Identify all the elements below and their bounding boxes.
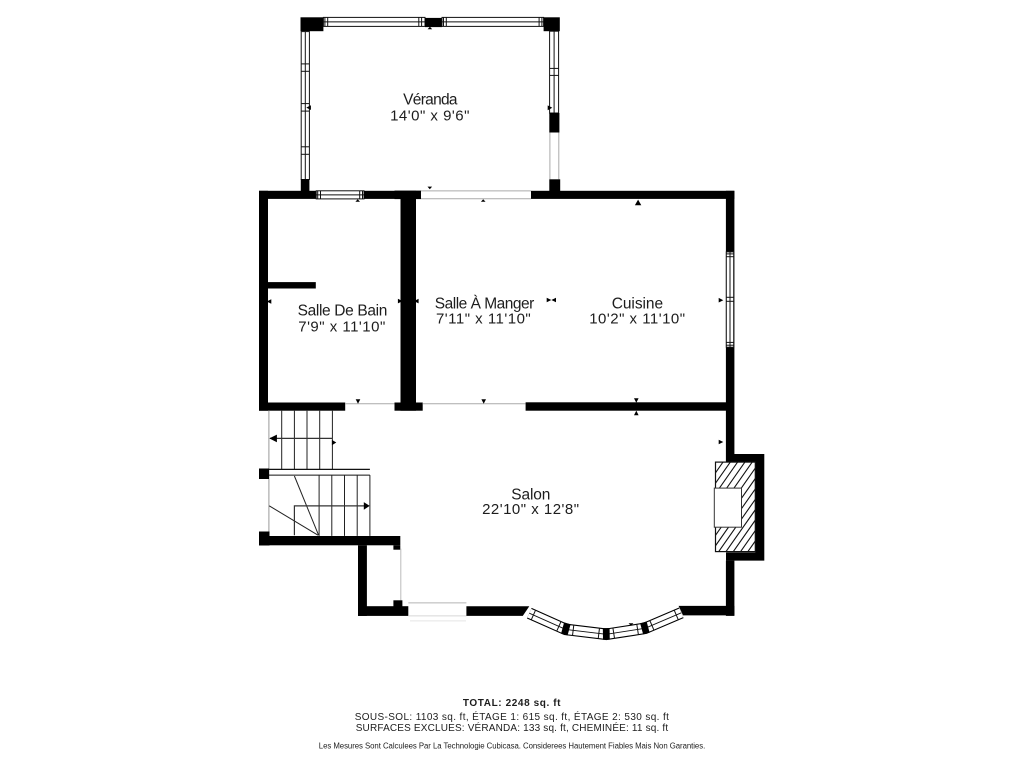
- svg-text:SURFACES EXCLUES: VÉRANDA: 133: SURFACES EXCLUES: VÉRANDA: 133 sq. ft, C…: [356, 721, 669, 734]
- svg-text:7'9" x 11'10": 7'9" x 11'10": [298, 319, 386, 336]
- svg-text:TOTAL: 2248 sq. ft: TOTAL: 2248 sq. ft: [463, 698, 561, 709]
- svg-text:14'0" x 9'6": 14'0" x 9'6": [390, 107, 470, 124]
- svg-text:10'2" x 11'10": 10'2" x 11'10": [589, 311, 685, 328]
- svg-text:SOUS-SOL: 1103 sq. ft, ÉTAGE 1: SOUS-SOL: 1103 sq. ft, ÉTAGE 1: 615 sq. …: [355, 710, 670, 723]
- svg-text:7'11" x 11'10": 7'11" x 11'10": [436, 311, 531, 328]
- svg-text:22'10" x 12'8": 22'10" x 12'8": [482, 501, 579, 518]
- svg-text:Salle De Bain: Salle De Bain: [298, 303, 387, 320]
- svg-text:Véranda: Véranda: [403, 92, 458, 109]
- svg-text:Les Mesures Sont Calculees Par: Les Mesures Sont Calculees Par La Techno…: [319, 742, 705, 751]
